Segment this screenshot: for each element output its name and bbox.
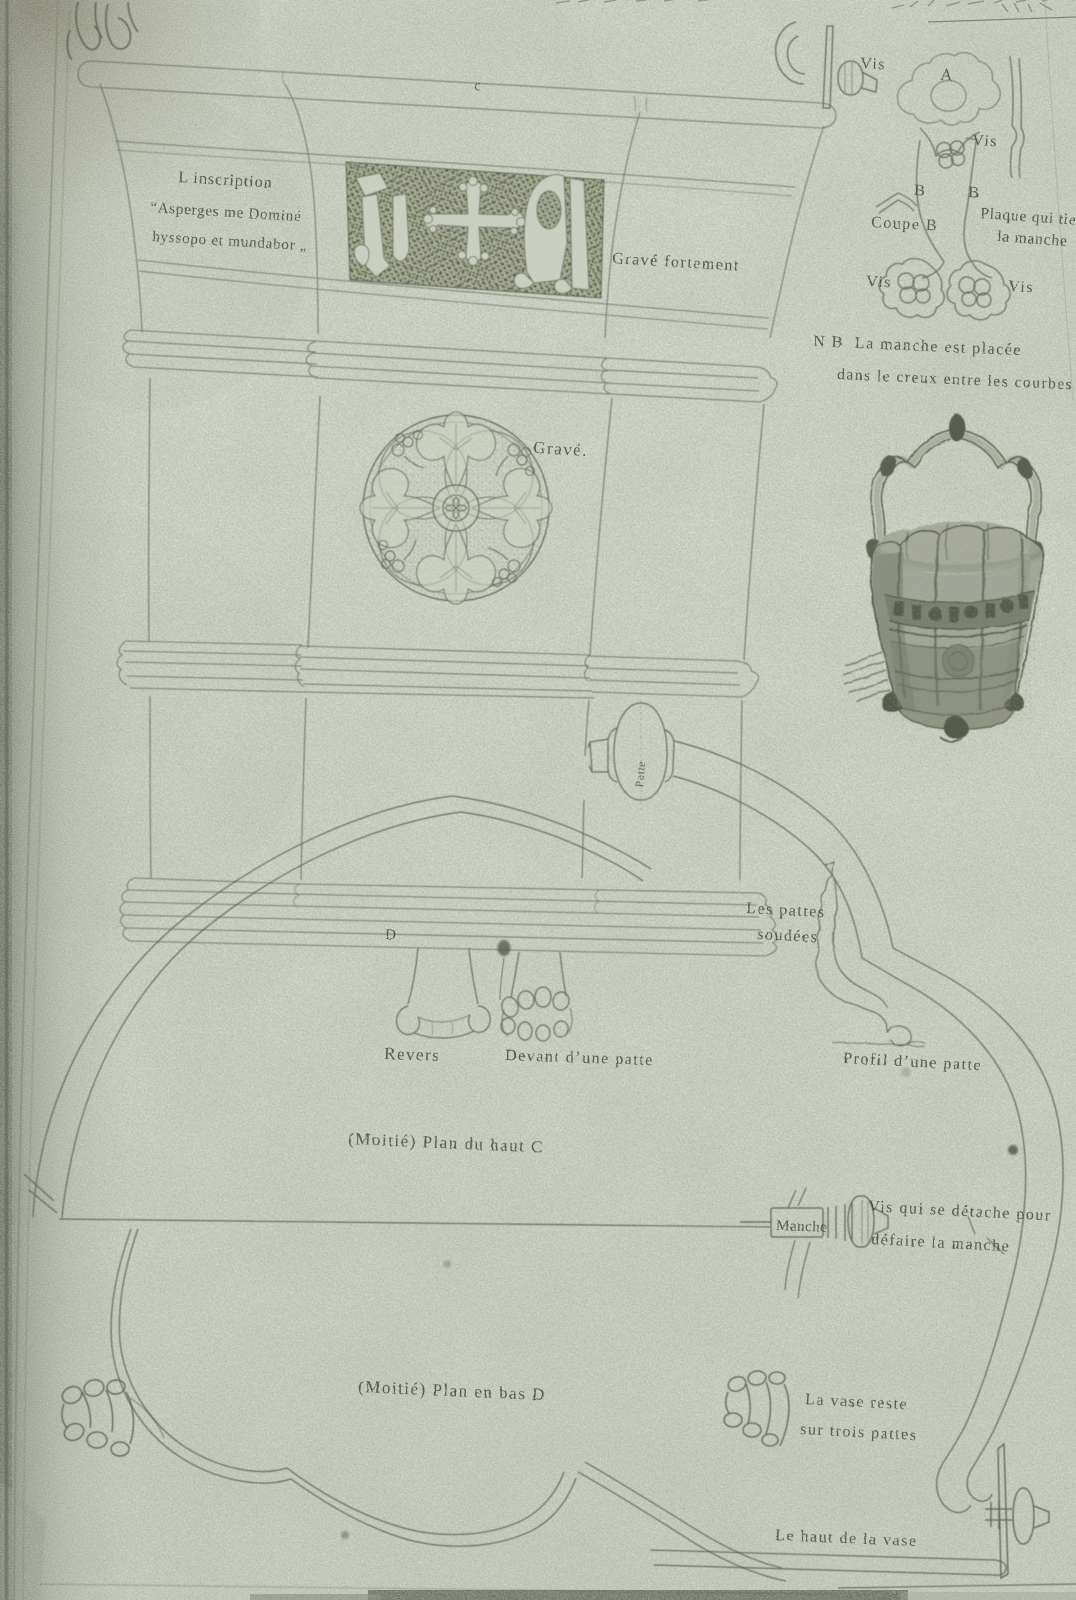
svg-text:Vis: Vis: [1008, 278, 1035, 296]
svg-text:B: B: [968, 184, 981, 202]
svg-text:Patte: Patte: [632, 760, 649, 788]
svg-text:soudées: soudées: [757, 926, 819, 946]
svg-text:A: A: [940, 65, 955, 85]
svg-text:D: D: [385, 927, 398, 943]
svg-text:Gravé.: Gravé.: [533, 438, 589, 460]
svg-text:Vis: Vis: [972, 132, 999, 150]
svg-text:Coupe B: Coupe B: [871, 214, 939, 234]
svg-text:c: c: [474, 78, 483, 94]
svg-text:B: B: [914, 182, 927, 200]
svg-text:Vis: Vis: [866, 273, 893, 291]
svg-text:Manche: Manche: [776, 1218, 828, 1236]
svg-text:Revers: Revers: [384, 1044, 441, 1065]
svg-text:Vis: Vis: [860, 55, 887, 73]
